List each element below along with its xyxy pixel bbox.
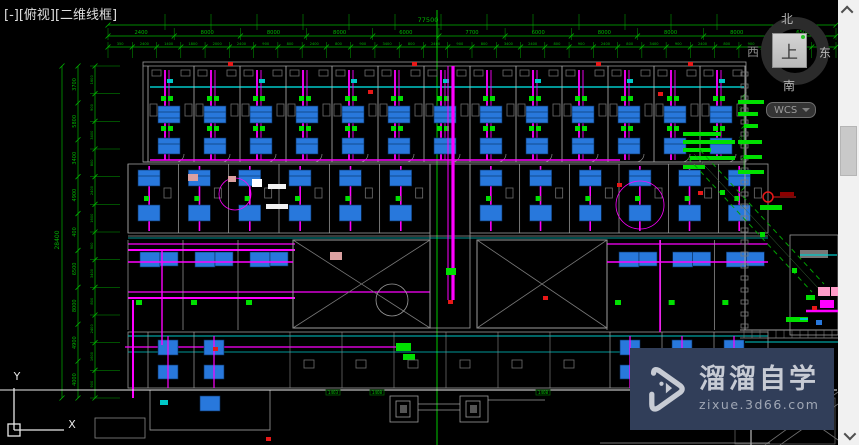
svg-text:8000: 8000	[267, 30, 280, 36]
svg-text:8000: 8000	[201, 30, 214, 36]
svg-text:4000: 4000	[72, 373, 78, 386]
svg-text:8000: 8000	[664, 30, 677, 36]
svg-text:900: 900	[262, 42, 270, 46]
svg-text:X: X	[68, 418, 76, 431]
fan-coil-unit	[619, 252, 639, 267]
fan-coil-unit	[579, 205, 601, 221]
fan-coil-unit	[480, 170, 502, 186]
svg-text:900: 900	[359, 42, 367, 46]
svg-text:8000: 8000	[333, 30, 346, 36]
fan-coil-unit	[480, 106, 502, 123]
svg-text:3400: 3400	[382, 42, 392, 46]
scroll-up-icon	[841, 5, 854, 18]
svg-text:2400: 2400	[90, 185, 94, 195]
svg-text:1400: 1400	[164, 42, 174, 46]
fan-coil-unit	[388, 106, 410, 123]
fan-coil-unit	[480, 205, 502, 221]
viewport-controls-label[interactable]: [-][俯视][二维线框]	[4, 4, 117, 23]
fan-coil-unit	[339, 170, 361, 186]
fan-coil-unit	[250, 252, 270, 267]
fan-coil-unit	[679, 170, 701, 186]
fan-coil-unit	[530, 205, 552, 221]
svg-text:1600: 1600	[90, 213, 94, 223]
svg-text:800: 800	[90, 297, 94, 305]
svg-text:900: 900	[578, 42, 586, 46]
fan-coil-unit	[629, 170, 651, 186]
fan-coil-unit	[526, 106, 548, 123]
svg-text:900: 900	[675, 42, 683, 46]
svg-text:1600: 1600	[90, 351, 94, 361]
svg-text:3400: 3400	[649, 42, 659, 46]
fan-coil-unit	[664, 138, 686, 154]
ucs-icon: YX	[8, 370, 76, 436]
svg-text:2400: 2400	[431, 42, 441, 46]
svg-text:6500: 6500	[72, 263, 78, 276]
svg-text:2000: 2000	[213, 42, 223, 46]
fan-coil-unit	[679, 205, 701, 221]
fan-coil-unit	[140, 252, 160, 267]
fan-coil-unit	[250, 138, 272, 154]
svg-text:400: 400	[72, 227, 78, 237]
fan-coil-unit	[579, 170, 601, 186]
svg-text:800: 800	[90, 159, 94, 167]
svg-text:77500: 77500	[418, 16, 439, 24]
viewcube-east[interactable]: 东	[819, 44, 831, 61]
svg-text:4900: 4900	[72, 336, 78, 349]
fan-coil-unit	[639, 252, 657, 266]
svg-text:3700: 3700	[72, 78, 78, 91]
svg-text:6000: 6000	[532, 30, 545, 36]
fan-coil-unit	[270, 252, 288, 266]
svg-text:2400: 2400	[310, 42, 320, 46]
svg-text:1408: 1408	[538, 390, 549, 395]
fan-coil-unit	[158, 138, 180, 154]
fan-coil-unit	[188, 205, 210, 221]
scroll-down-button[interactable]	[838, 425, 859, 445]
fan-coil-unit	[726, 252, 746, 267]
svg-text:800: 800	[626, 42, 634, 46]
svg-text:800: 800	[408, 42, 416, 46]
fan-coil-unit	[296, 106, 318, 123]
fan-coil-unit	[530, 170, 552, 186]
svg-text:2400: 2400	[601, 42, 611, 46]
svg-text:4900: 4900	[72, 189, 78, 202]
fan-coil-unit	[388, 138, 410, 154]
svg-text:8000: 8000	[598, 30, 611, 36]
fan-coil-unit	[342, 138, 364, 154]
svg-text:3400: 3400	[90, 130, 94, 140]
svg-text:1600: 1600	[90, 75, 94, 85]
svg-text:2400: 2400	[237, 42, 247, 46]
fan-coil-unit	[138, 205, 160, 221]
svg-text:350: 350	[117, 42, 125, 46]
svg-text:6000: 6000	[399, 30, 412, 36]
svg-text:900: 900	[90, 242, 94, 250]
svg-text:800: 800	[481, 42, 489, 46]
svg-text:2400: 2400	[528, 42, 538, 46]
watermark-site: zixue.3d66.com	[699, 397, 819, 412]
fan-coil-unit	[158, 106, 180, 123]
fan-coil-unit	[710, 106, 732, 123]
svg-text:2400: 2400	[90, 324, 94, 334]
svg-text:900: 900	[90, 380, 94, 388]
svg-text:28400: 28400	[54, 230, 61, 249]
fan-coil-unit	[289, 170, 311, 186]
fan-coil-unit	[342, 106, 364, 123]
fan-coil-unit	[746, 252, 764, 266]
svg-text:800: 800	[287, 42, 295, 46]
scroll-down-icon	[844, 427, 857, 440]
fan-coil-unit	[239, 205, 261, 221]
fan-coil-unit	[250, 106, 272, 123]
svg-text:800: 800	[554, 42, 562, 46]
fan-coil-unit	[673, 252, 693, 267]
fan-coil-unit	[195, 252, 215, 267]
fan-coil-unit	[629, 205, 651, 221]
scroll-up-button[interactable]	[838, 0, 859, 20]
svg-text:1800: 1800	[188, 42, 198, 46]
fan-coil-unit	[618, 106, 640, 123]
svg-text:1403: 1403	[328, 390, 339, 395]
svg-text:Y: Y	[13, 370, 21, 383]
fan-coil-unit	[200, 396, 220, 411]
svg-text:800: 800	[723, 42, 731, 46]
svg-text:3400: 3400	[72, 152, 78, 165]
fan-coil-unit	[572, 106, 594, 123]
fan-coil-unit	[215, 252, 233, 266]
svg-text:2400: 2400	[698, 42, 708, 46]
chevron-down-icon	[802, 108, 810, 112]
svg-text:900: 900	[456, 42, 464, 46]
svg-text:2400: 2400	[140, 42, 150, 46]
fan-coil-unit	[572, 138, 594, 154]
wcs-dropdown[interactable]: WCS	[766, 102, 816, 118]
wcs-label: WCS	[774, 105, 797, 116]
fan-coil-unit	[390, 205, 412, 221]
autocad-viewport: 7750024008000800080006000770060008000800…	[0, 0, 859, 445]
fan-coil-unit	[693, 252, 711, 266]
fan-coil-unit	[204, 106, 226, 123]
svg-text:5800: 5800	[72, 115, 78, 128]
fan-coil-unit	[480, 138, 502, 154]
viewcube-west[interactable]: 西	[747, 43, 759, 60]
fan-coil-unit	[526, 138, 548, 154]
fan-coil-unit	[664, 106, 686, 123]
fan-coil-unit	[138, 170, 160, 186]
watermark-brand: 溜溜自学	[699, 366, 819, 394]
fan-coil-unit	[390, 170, 412, 186]
fan-coil-unit	[296, 138, 318, 154]
viewcube-home-dot	[801, 35, 805, 39]
svg-text:1408: 1408	[372, 390, 383, 395]
fan-coil-unit	[204, 138, 226, 154]
play-logo-icon	[643, 364, 687, 414]
viewcube[interactable]: 上 北 南 东 西	[742, 6, 842, 106]
scrollbar-thumb[interactable]	[840, 126, 857, 176]
svg-text:900: 900	[90, 103, 94, 111]
vertical-scrollbar[interactable]	[838, 0, 859, 445]
svg-text:8000: 8000	[72, 299, 78, 312]
fan-coil-unit	[339, 205, 361, 221]
svg-text:3400: 3400	[504, 42, 514, 46]
viewcube-south[interactable]: 南	[783, 77, 795, 94]
svg-text:7700: 7700	[465, 30, 478, 36]
fan-coil-unit	[289, 205, 311, 221]
svg-text:2400: 2400	[134, 30, 147, 36]
svg-text:800: 800	[335, 42, 343, 46]
fan-coil-unit	[618, 138, 640, 154]
svg-text:3400: 3400	[90, 268, 94, 278]
viewcube-north[interactable]: 北	[781, 10, 793, 27]
watermark: 溜溜自学 zixue.3d66.com	[630, 348, 834, 430]
